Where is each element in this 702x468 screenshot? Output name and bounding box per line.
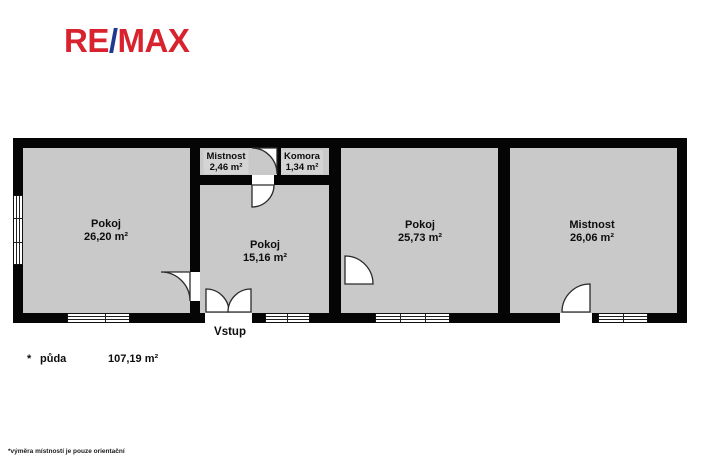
door-opening-mistnost (252, 175, 274, 185)
window-room3-bottom (375, 313, 450, 323)
room-name: Komora (284, 151, 320, 162)
room-area: 15,16 m² (243, 252, 287, 265)
window-room4-bottom (598, 313, 648, 323)
window-divider (623, 314, 624, 322)
door-opening-entrance (205, 313, 252, 323)
window-room2-bottom (265, 313, 310, 323)
window-divider (14, 218, 22, 219)
window-room1-bottom (67, 313, 130, 323)
remax-logo: RE/MAX (64, 24, 189, 58)
window-divider (105, 314, 106, 322)
room-area: 26,20 m² (84, 231, 128, 244)
room-area: 25,73 m² (398, 232, 442, 245)
room-area: 26,06 m² (569, 232, 614, 245)
room-label-mistnost-small: Mistnost 2,46 m² (203, 150, 248, 174)
window-divider (14, 242, 22, 243)
room-name: Pokoj (398, 219, 442, 232)
room-label-pokoj-2: Pokoj 15,16 m² (243, 239, 287, 265)
window-divider (287, 314, 288, 322)
floor-plan-page: RE/MAX (0, 0, 702, 468)
room-label-pokoj-3: Pokoj 25,73 m² (398, 219, 442, 245)
room-label-pokoj-1: Pokoj 26,20 m² (84, 218, 128, 244)
logo-re: RE (64, 22, 109, 59)
window-left-wall (13, 195, 23, 265)
room-label-mistnost-4: Mistnost 26,06 m² (569, 219, 614, 245)
interior-wall-room3-room4 (498, 148, 510, 313)
legend-name: půda (40, 353, 66, 365)
footnote: *výměra místností je pouze orientační (8, 448, 125, 455)
logo-slash-icon: / (109, 22, 118, 59)
room-area: 1,34 m² (284, 162, 320, 173)
entrance-label: Vstup (214, 326, 246, 338)
room-name: Mistnost (206, 151, 245, 162)
room-name: Pokoj (84, 218, 128, 231)
interior-wall-room2-room3 (329, 148, 341, 313)
door-opening-room1 (190, 272, 200, 301)
door-opening-room4 (560, 313, 592, 323)
legend-marker: * (27, 353, 31, 365)
window-divider (400, 314, 401, 322)
legend-area: 107,19 m² (108, 353, 158, 365)
window-divider (425, 314, 426, 322)
room-label-komora: Komora 1,34 m² (281, 150, 323, 174)
logo-max: MAX (118, 22, 190, 59)
attic-legend: * půda 107,19 m² (0, 353, 702, 367)
room-name: Mistnost (569, 219, 614, 232)
room-name: Pokoj (243, 239, 287, 252)
room-area: 2,46 m² (206, 162, 245, 173)
